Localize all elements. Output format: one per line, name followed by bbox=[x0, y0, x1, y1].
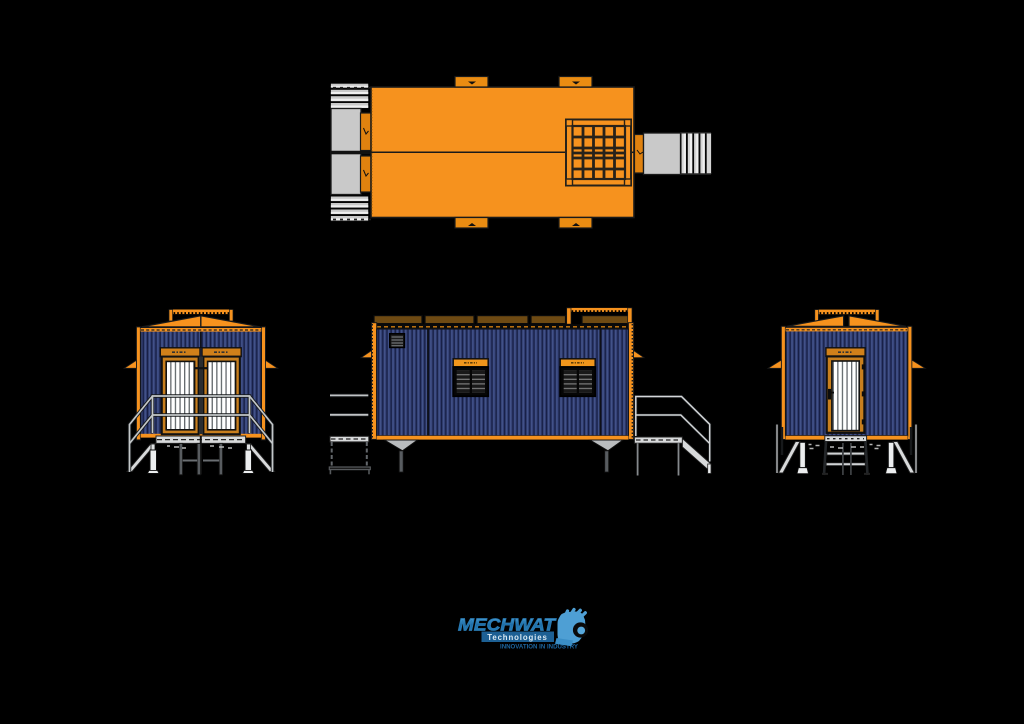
svg-text:Technologies: Technologies bbox=[487, 633, 547, 642]
